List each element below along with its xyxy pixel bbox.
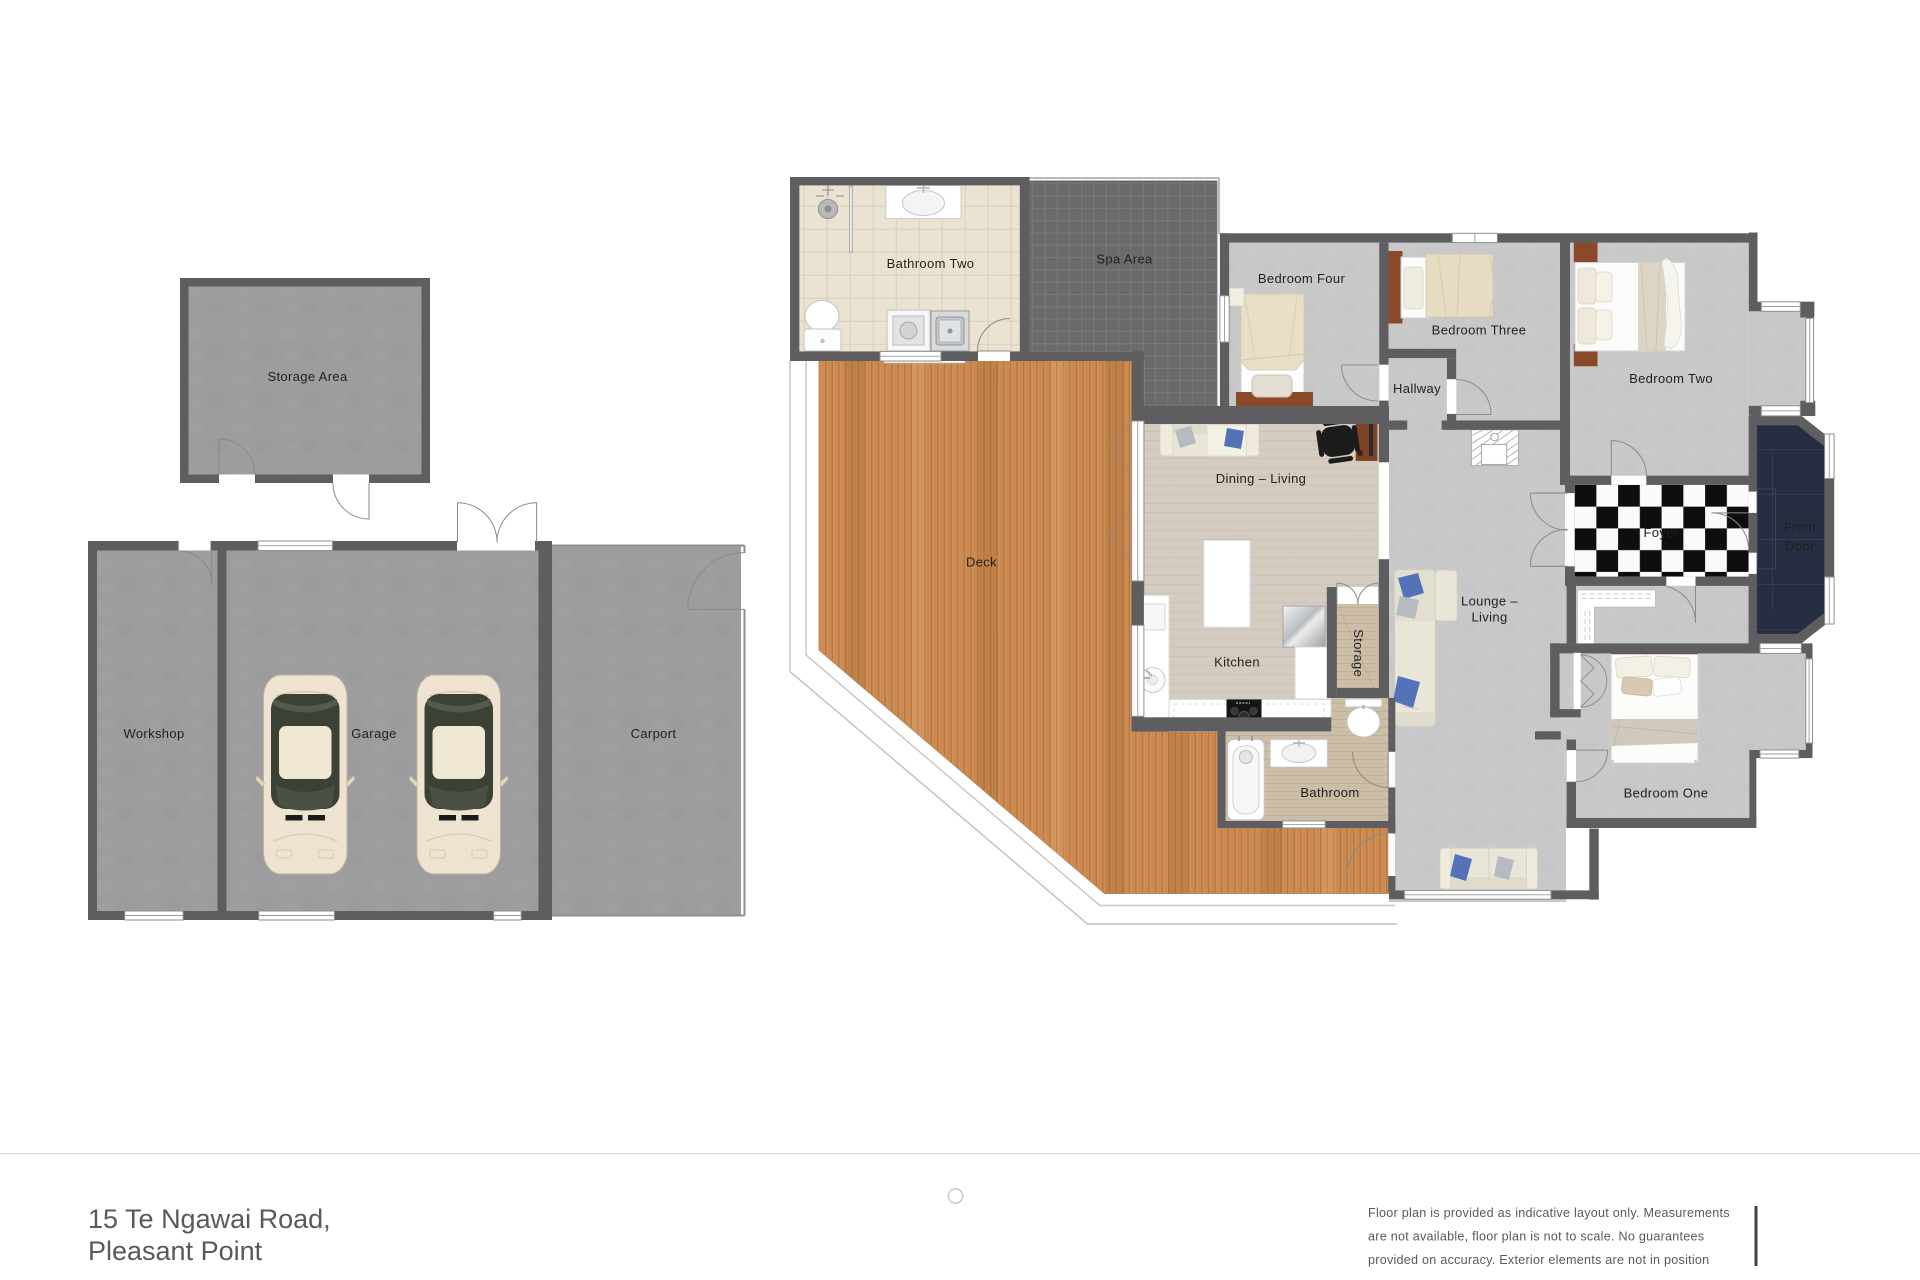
svg-text:Workshop: Workshop [123, 726, 184, 741]
svg-text:Bathroom Two: Bathroom Two [887, 256, 975, 271]
svg-text:Living: Living [1471, 610, 1507, 625]
svg-text:Storage Area: Storage Area [267, 369, 348, 384]
svg-text:Spa Area: Spa Area [1096, 252, 1153, 267]
svg-text:Carport: Carport [631, 726, 677, 741]
svg-text:provided on accuracy. Exterior: provided on accuracy. Exterior elements … [1368, 1253, 1709, 1267]
svg-text:Floor plan is provided as indi: Floor plan is provided as indicative lay… [1368, 1206, 1730, 1220]
svg-text:Lounge –: Lounge – [1461, 594, 1518, 609]
svg-text:Hallway: Hallway [1393, 381, 1441, 396]
svg-text:Kitchen: Kitchen [1214, 655, 1260, 670]
svg-text:Pleasant Point: Pleasant Point [88, 1236, 263, 1266]
svg-text:are not available, floor plan: are not available, floor plan is not to … [1368, 1230, 1704, 1244]
svg-text:Dining – Living: Dining – Living [1216, 471, 1307, 486]
svg-text:Door: Door [1785, 539, 1815, 554]
svg-text:Bathroom: Bathroom [1300, 785, 1359, 800]
svg-text:Bedroom Four: Bedroom Four [1258, 271, 1346, 286]
svg-text:Storage: Storage [1351, 629, 1366, 677]
svg-text:Bedroom Three: Bedroom Three [1432, 323, 1527, 338]
svg-text:Foyer: Foyer [1644, 525, 1679, 540]
svg-text:Bedroom One: Bedroom One [1624, 786, 1709, 801]
svg-text:Deck: Deck [966, 555, 997, 570]
svg-text:Garage: Garage [351, 726, 396, 741]
svg-text:Bedroom Two: Bedroom Two [1629, 371, 1713, 386]
svg-text:15 Te Ngawai Road,: 15 Te Ngawai Road, [88, 1204, 331, 1234]
svg-text:Front: Front [1784, 520, 1816, 535]
